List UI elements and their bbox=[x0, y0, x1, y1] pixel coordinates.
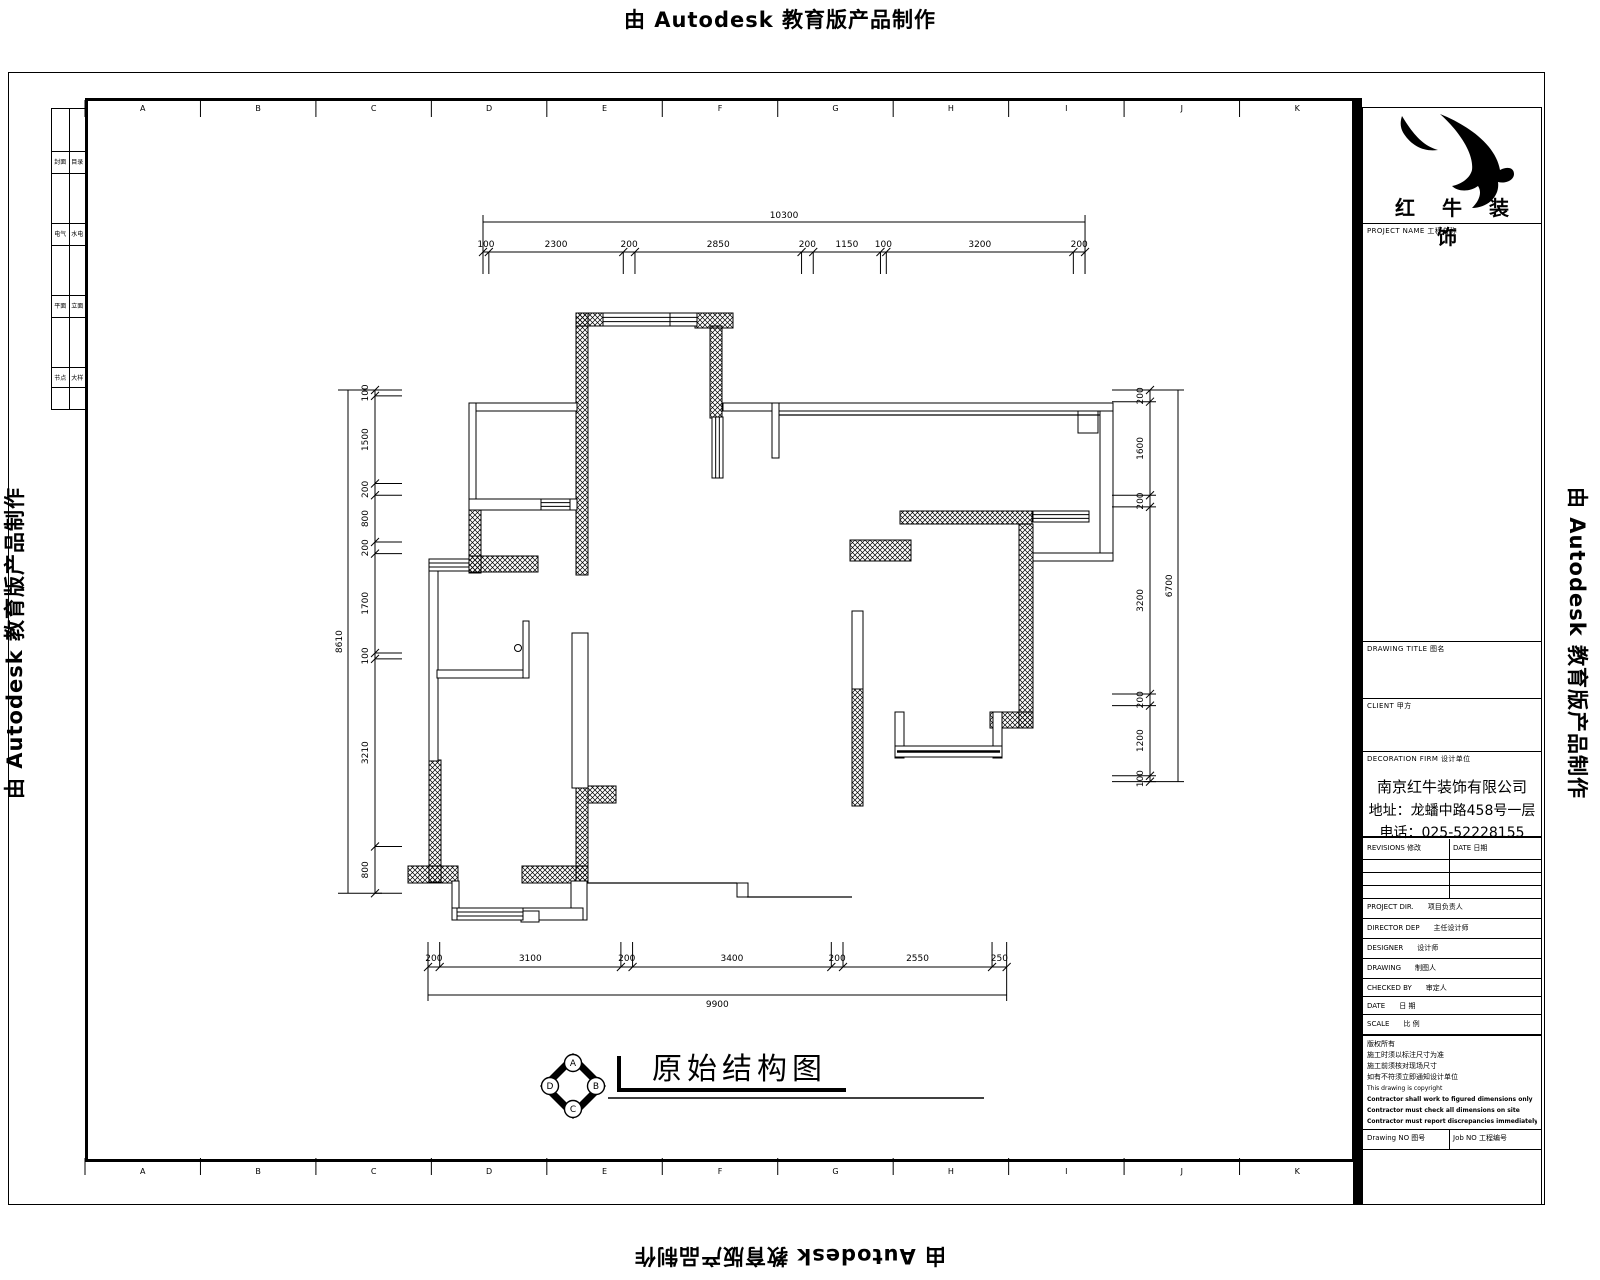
divider bbox=[1363, 698, 1541, 699]
sheet-index-row: 节点大样 bbox=[52, 367, 85, 387]
field-label-en: CHECKED BY bbox=[1367, 984, 1412, 992]
drawing-title-label: DRAWING TITLE 图名 bbox=[1367, 644, 1445, 654]
company-address: 地址：龙蟠中路458号一层 bbox=[1363, 800, 1541, 820]
sheet-index-cell bbox=[52, 246, 69, 295]
sheet-index-cell bbox=[69, 318, 86, 367]
revisions-row-line bbox=[1363, 885, 1541, 886]
note-line: Contractor shall work to figured dimensi… bbox=[1367, 1094, 1537, 1105]
project-name-label: PROJECT NAME 工程名称 bbox=[1367, 226, 1457, 236]
sheet-index-row bbox=[52, 317, 85, 367]
drawing-no-label: Drawing NO 图号 bbox=[1363, 1129, 1449, 1149]
note-line: Contractor must check all dimensions on … bbox=[1367, 1105, 1537, 1116]
note-line: 如有不符须立即通知设计单位 bbox=[1367, 1072, 1537, 1083]
revisions-row-line bbox=[1363, 872, 1541, 873]
field-label-zh: 比 例 bbox=[1403, 1020, 1419, 1028]
titleblock-field-row: SCALE比 例 bbox=[1363, 1014, 1541, 1034]
sheet-index-cell bbox=[52, 109, 69, 151]
titleblock-divider-bar bbox=[1353, 98, 1362, 1205]
sheet-index-cell: 水电 bbox=[69, 224, 86, 245]
sheet-index-row bbox=[52, 245, 85, 295]
note-line: 施工时须以标注尺寸为准 bbox=[1367, 1050, 1537, 1061]
field-label-en: PROJECT DIR. bbox=[1367, 903, 1414, 911]
revisions-row-line bbox=[1363, 859, 1541, 860]
note-line: This drawing is copyright bbox=[1367, 1083, 1537, 1094]
sheet-index-row: 平面立面 bbox=[52, 295, 85, 317]
sheet-index-cell bbox=[69, 388, 86, 409]
field-label-en: DIRECTOR DEP bbox=[1367, 924, 1420, 932]
note-line: 版权所有 bbox=[1367, 1039, 1537, 1050]
drawing-title: 原始结构图 bbox=[652, 1044, 827, 1088]
revisions-header: REVISIONS 修改 bbox=[1363, 839, 1449, 859]
sheet-index-row bbox=[52, 173, 85, 223]
field-label-zh: 日 期 bbox=[1399, 1002, 1415, 1010]
titleblock-field-row: DIRECTOR DEP主任设计师 bbox=[1363, 918, 1541, 938]
field-label-en: DATE bbox=[1367, 1002, 1385, 1010]
drawing-frame bbox=[85, 98, 1355, 1162]
sheet-index-cell: 目录 bbox=[69, 152, 86, 173]
sheet-index-cell bbox=[69, 246, 86, 295]
field-label-zh: 项目负责人 bbox=[1428, 903, 1463, 911]
sheet-index-cell: 封面 bbox=[52, 152, 69, 173]
revisions-column-divider bbox=[1449, 839, 1450, 898]
sheet-index-cell: 立面 bbox=[69, 296, 86, 317]
revisions-date-header: DATE 日期 bbox=[1449, 839, 1541, 859]
notes-block: 版权所有施工时须以标注尺寸为准施工前须核对现场尺寸如有不符须立即通知设计单位Th… bbox=[1363, 1034, 1541, 1129]
field-label-zh: 设计师 bbox=[1417, 944, 1438, 952]
divider bbox=[1363, 751, 1541, 752]
titleblock-field-row: CHECKED BY审定人 bbox=[1363, 978, 1541, 996]
field-label-en: DRAWING bbox=[1367, 964, 1401, 972]
sheet-index-cell bbox=[52, 174, 69, 223]
sheet-index-cell: 节点 bbox=[52, 368, 69, 387]
sheet-index-row: 电气水电 bbox=[52, 223, 85, 245]
sheet-index-cell bbox=[52, 318, 69, 367]
signature-fields: PROJECT DIR.项目负责人DIRECTOR DEP主任设计师DESIGN… bbox=[1363, 898, 1541, 1034]
field-label-zh: 审定人 bbox=[1426, 984, 1447, 992]
field-label-en: SCALE bbox=[1367, 1020, 1389, 1028]
divider bbox=[1363, 223, 1541, 224]
company-name: 南京红牛装饰有限公司 bbox=[1363, 776, 1541, 797]
job-no-label: Job NO 工程编号 bbox=[1449, 1129, 1541, 1149]
sheet-index-cell: 平面 bbox=[52, 296, 69, 317]
sheet-index-cell bbox=[52, 388, 69, 409]
company-logo-text: 红 牛 装 饰 bbox=[1363, 192, 1541, 250]
divider bbox=[1363, 836, 1541, 838]
title-block: 红 牛 装 饰 PROJECT NAME 工程名称 DRAWING TITLE … bbox=[1362, 107, 1542, 1205]
sheet-index-cell bbox=[69, 109, 86, 151]
firm-label: DECORATION FIRM 设计单位 bbox=[1367, 754, 1471, 764]
titleblock-field-row: DRAWING制图人 bbox=[1363, 958, 1541, 978]
client-label: CLIENT 甲方 bbox=[1367, 701, 1412, 711]
sheet-index-row bbox=[52, 109, 85, 151]
sheet-index-table: 封面目录电气水电平面立面节点大样 bbox=[51, 108, 86, 410]
field-label-zh: 制图人 bbox=[1415, 964, 1436, 972]
divider bbox=[1363, 1149, 1541, 1150]
sheet-index-cell: 电气 bbox=[52, 224, 69, 245]
note-line: 施工前须核对现场尺寸 bbox=[1367, 1061, 1537, 1072]
sheet-index-cell: 大样 bbox=[69, 368, 86, 387]
sheet-index-row bbox=[52, 387, 85, 409]
divider bbox=[1363, 641, 1541, 642]
titleblock-field-row: DESIGNER设计师 bbox=[1363, 938, 1541, 958]
titleblock-field-row: DATE日 期 bbox=[1363, 996, 1541, 1014]
footer-column-divider bbox=[1449, 1129, 1450, 1149]
sheet-index-row: 封面目录 bbox=[52, 151, 85, 173]
field-label-en: DESIGNER bbox=[1367, 944, 1403, 952]
note-line: Contractor must report discrepancies imm… bbox=[1367, 1116, 1537, 1127]
sheet-index-cell bbox=[69, 174, 86, 223]
titleblock-field-row: PROJECT DIR.项目负责人 bbox=[1363, 898, 1541, 918]
field-label-zh: 主任设计师 bbox=[1434, 924, 1469, 932]
